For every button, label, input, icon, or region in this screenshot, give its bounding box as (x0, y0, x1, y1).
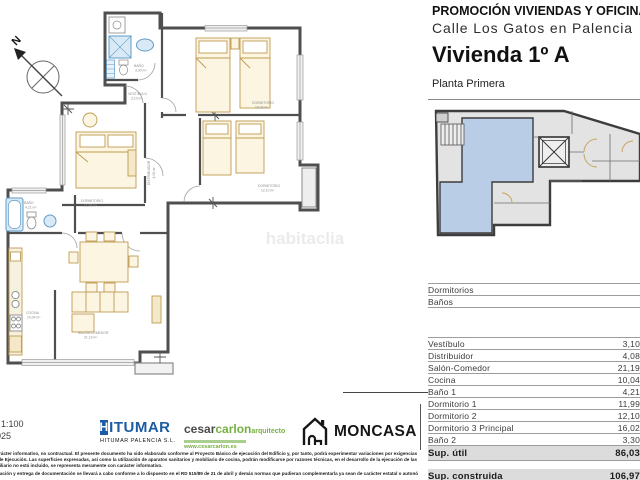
kitchen-fixtures (9, 248, 22, 355)
table-row: Baño 23,30 (428, 434, 640, 446)
room-label: SALÓN-COMEDOR (78, 330, 109, 335)
key-plan (432, 107, 640, 265)
bedroom1-furniture (76, 113, 136, 188)
table-row: Distribuidor4,08 (428, 350, 640, 362)
room-area: 3,30 m² (135, 69, 147, 73)
salon-furniture (69, 232, 161, 332)
promotion-address: Calle Los Gatos en Palencia (432, 20, 633, 36)
room-area: 4,21 m² (25, 206, 37, 210)
date-text: 025 (0, 430, 24, 442)
bedroom2-beds (203, 121, 264, 175)
elevator-core (539, 137, 569, 167)
room-area: 12,10 m² (261, 189, 275, 193)
room-label: COCINA (26, 311, 40, 315)
main-floor-plan: N habitaclia (0, 0, 430, 400)
table-row: Baño 14,21 (428, 386, 640, 398)
floor-label: Planta Primera (432, 78, 505, 90)
promotion-title: PROMOCIÓN VIVIENDAS Y OFICINAS (432, 4, 640, 18)
floorplan-sheet: N habitaclia (0, 0, 640, 480)
room-label: DORMITORIO (252, 101, 274, 105)
table-row: Cocina10,04 (428, 374, 640, 386)
table-row: Dormitorio 212,10 (428, 410, 640, 422)
hitumar-h-icon: H (100, 420, 109, 435)
area-table: Dormitorios Baños Vestíbulo3,10 Distribu… (428, 283, 640, 480)
room-label: BAÑO (24, 200, 34, 205)
table-row: Dormitorios (428, 283, 640, 296)
watermark: habitaclia (266, 229, 345, 248)
north-compass-icon: N (10, 34, 62, 96)
room-area: 3,10 m² (131, 97, 143, 101)
room-area: 4,08 m² (152, 166, 156, 178)
table-row: Salón-Comedor21,19 (428, 362, 640, 374)
room-area: 10,04 m² (27, 316, 41, 320)
room-label: VESTIBULO (128, 92, 147, 96)
hitumar-subtitle: HITUMAR PALENCIA S.L. (100, 438, 170, 444)
table-row: Baños (428, 296, 640, 308)
table-row: Dormitorio 3 Principal16,02 (428, 422, 640, 434)
architect-logo: cesarcarlonarquitecto www.cesarcarlon.es (184, 420, 285, 450)
table-gap (428, 461, 640, 469)
hitumar-logo: H ITUMAR HITUMAR PALENCIA S.L. (100, 419, 170, 444)
scale-text: : 1:100 (0, 418, 24, 430)
table-gap (428, 308, 640, 337)
scale-block: : 1:100 025 (0, 418, 24, 442)
room-label: DISTRIBUIDOR (147, 160, 151, 185)
room-area: 21,19 m² (84, 336, 98, 340)
room-area: 16,02 m² (255, 106, 269, 110)
room-label: BAÑO (134, 63, 144, 68)
legal-disclaimer: carácter informativo, no contractual. El… (0, 451, 418, 477)
titleblock-divider (420, 404, 421, 450)
table-row: Vestíbulo3,10 (428, 337, 640, 350)
terrace-step (135, 363, 173, 374)
room-label: DORMITORIO (258, 184, 280, 188)
balcony (302, 168, 316, 207)
moncasa-logo: MONCASA (299, 415, 417, 449)
architect-address-line (184, 440, 246, 443)
header-divider (428, 99, 640, 100)
moncasa-house-icon (299, 415, 331, 449)
table-row: Dormitorio 111,99 (428, 398, 640, 410)
room-label: DORMITORIO (81, 199, 103, 203)
room-area: 11,99 m² (84, 204, 98, 208)
architect-website: www.cesarcarlon.es (184, 444, 285, 450)
unit-title: Vivienda 1º A (432, 42, 570, 68)
compass-n-label: N (10, 34, 24, 48)
built-area-row: Sup. construida106,97 (428, 469, 640, 480)
titleblock-line (343, 392, 428, 393)
useful-area-row: Sup. útil86,03 (428, 446, 640, 461)
